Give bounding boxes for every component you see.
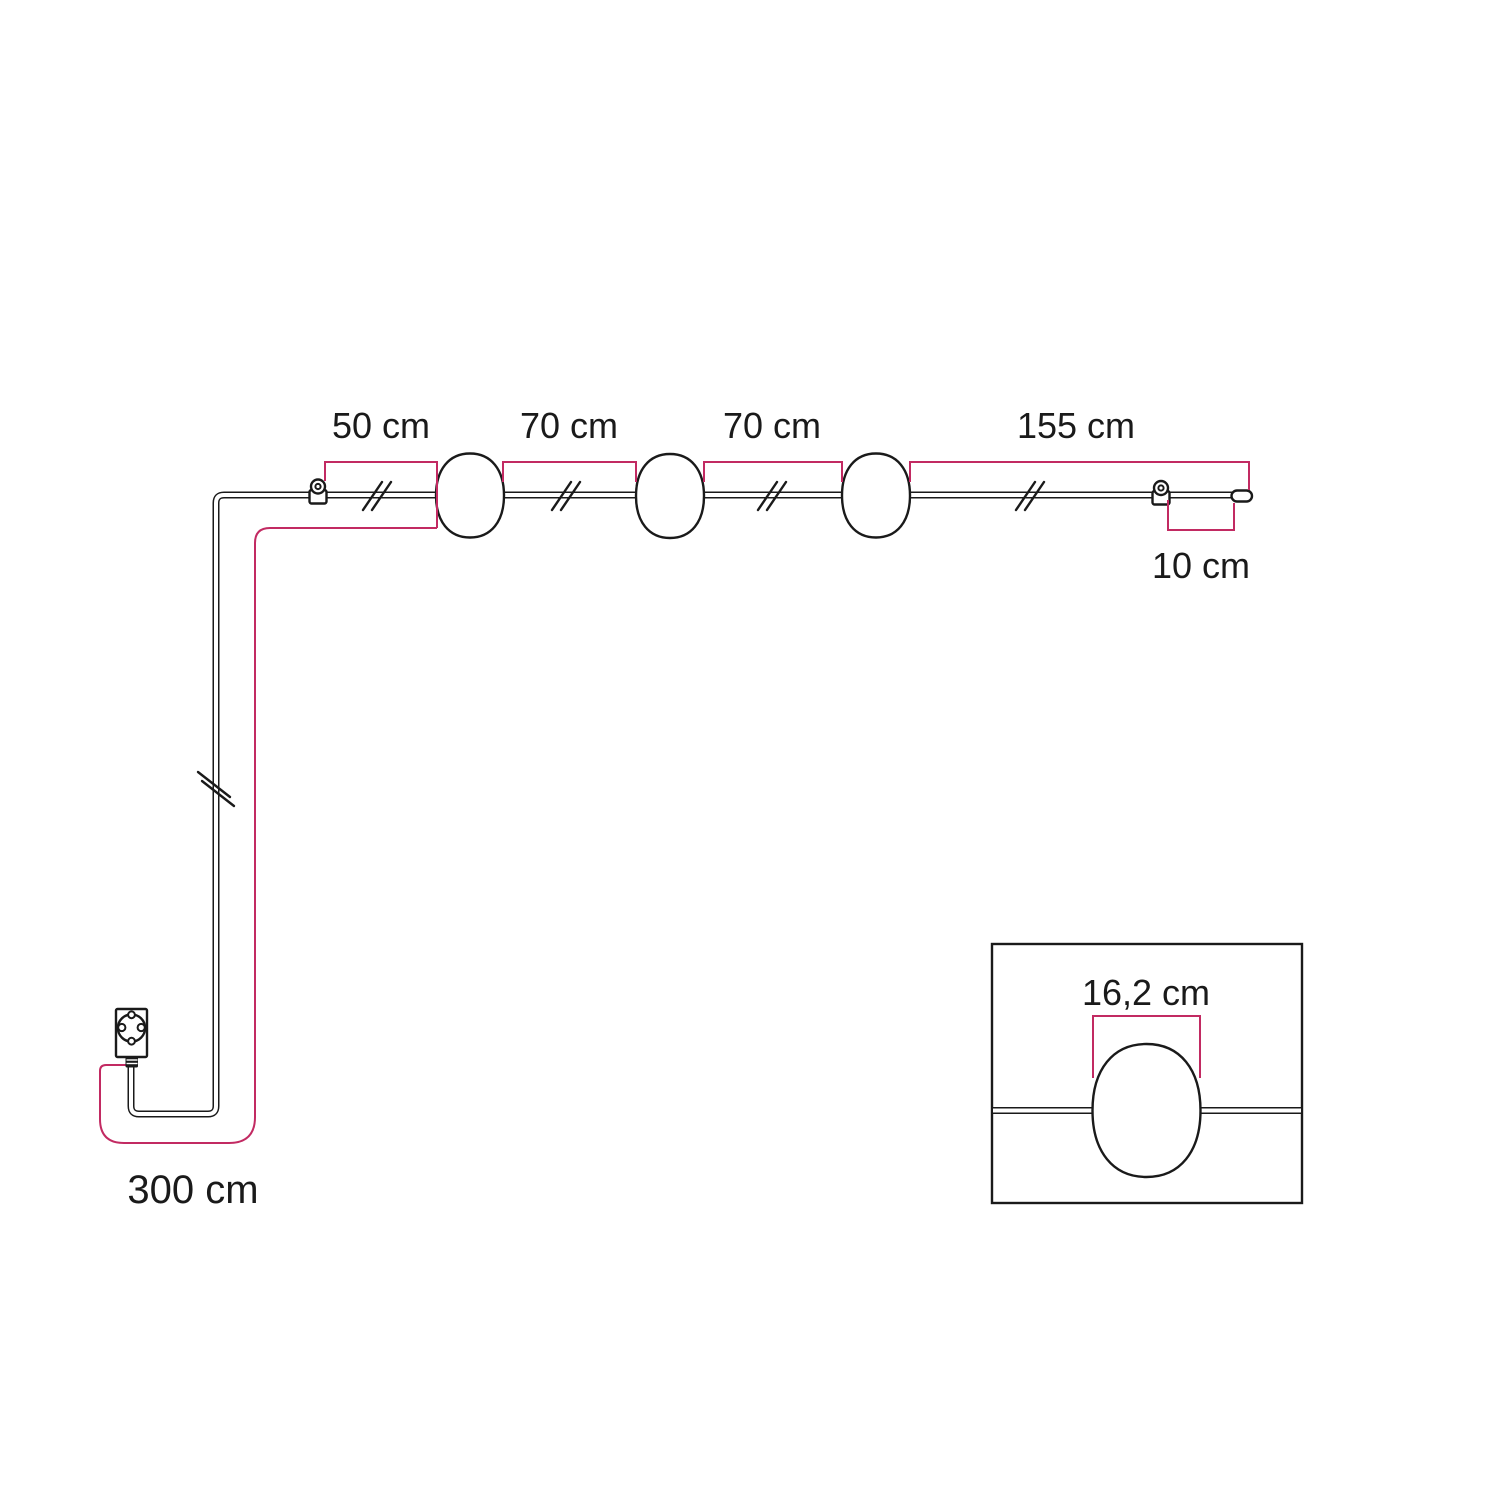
plug-earth-bottom [128,1038,135,1045]
dimension-label-70cm-a: 70 cm [520,405,618,446]
dimension-label-70cm-b: 70 cm [723,405,821,446]
hook-eyelet-left [310,480,327,504]
bracket-10cm [1168,500,1234,530]
hook-eyelet-right [1153,481,1170,505]
bracket-70cm-a [503,462,636,482]
lampshade-2 [636,454,704,538]
dimension-label-50cm: 50 cm [332,405,430,446]
dimension-label-16-2cm: 16,2 cm [1082,972,1210,1013]
cable-break-marks [198,482,1044,806]
plug-earth-top [128,1011,135,1018]
power-plug [116,1009,147,1068]
plug-pin-right [138,1024,145,1031]
dimension-label-155cm: 155 cm [1017,405,1135,446]
cable-end-cap [1232,491,1253,502]
plug-pin-left [118,1024,125,1031]
bracket-70cm-b [704,462,842,482]
plug-cable-connector [126,1057,139,1068]
dimension-label-10cm: 10 cm [1152,545,1250,586]
dimension-line-power-cable [100,528,437,1143]
bracket-155cm [910,462,1249,490]
diagram-canvas: 50 cm 70 cm 70 cm 155 cm 10 cm 300 cm 16… [0,0,1500,1500]
lampshade-1 [436,454,504,538]
lampshade-3 [842,454,910,538]
dimension-label-300cm: 300 cm [127,1168,258,1212]
string-light-dimension-diagram: 50 cm 70 cm 70 cm 155 cm 10 cm 300 cm 16… [0,0,1500,1500]
lampshade-detail-inset: 16,2 cm [992,944,1302,1203]
inset-lampshade [1093,1044,1201,1177]
